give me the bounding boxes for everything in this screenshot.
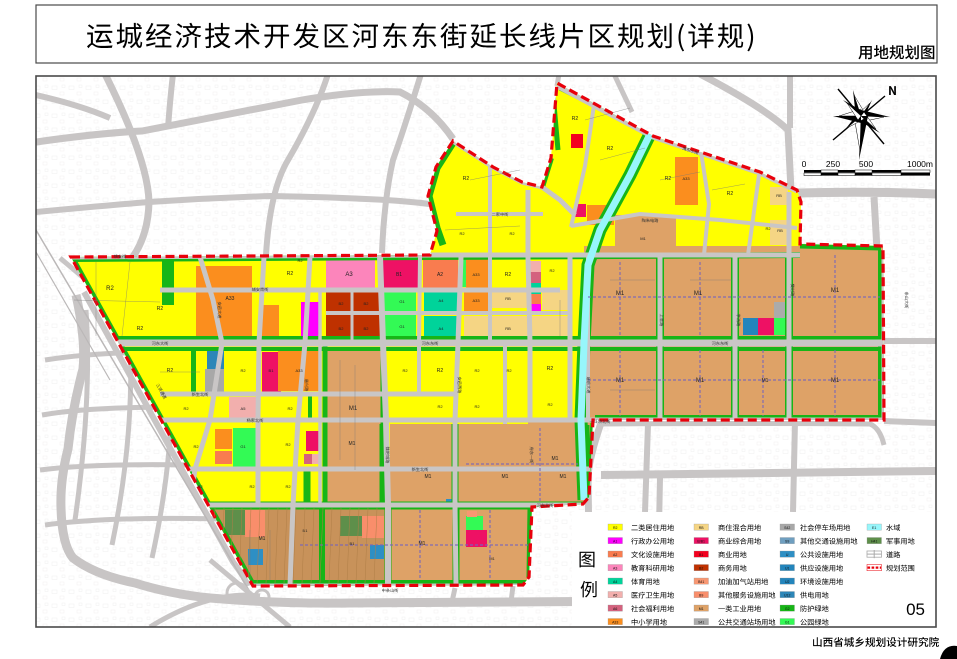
svg-text:M1: M1 (831, 378, 840, 384)
svg-text:R2: R2 (167, 368, 174, 374)
svg-text:R2: R2 (727, 191, 734, 197)
svg-text:M1: M1 (489, 556, 495, 561)
svg-text:R2: R2 (137, 326, 144, 332)
svg-text:A33: A33 (226, 296, 235, 302)
svg-text:R2: R2 (509, 231, 515, 236)
svg-text:R2: R2 (547, 366, 554, 372)
svg-text:R2: R2 (474, 404, 480, 409)
svg-text:R2: R2 (505, 272, 512, 278)
svg-text:R2: R2 (765, 226, 771, 231)
svg-text:B2: B2 (364, 301, 370, 306)
svg-text:R2: R2 (183, 406, 189, 411)
svg-text:R2: R2 (572, 116, 579, 122)
svg-text:G2: G2 (785, 607, 790, 611)
svg-text:A33: A33 (612, 620, 618, 624)
svg-text:A33: A33 (682, 176, 690, 181)
svg-text:R2: R2 (402, 368, 408, 373)
svg-text:A33: A33 (295, 368, 303, 373)
svg-text:B1: B1 (396, 272, 402, 278)
svg-text:250: 250 (826, 159, 840, 169)
svg-text:A1: A1 (613, 539, 617, 543)
svg-text:R2: R2 (506, 368, 512, 373)
svg-text:RB: RB (699, 526, 705, 530)
svg-text:RB: RB (777, 228, 783, 233)
svg-text:M1: M1 (616, 291, 625, 297)
svg-text:R2: R2 (240, 368, 246, 373)
svg-text:M1: M1 (831, 288, 840, 294)
svg-text:B1: B1 (699, 553, 703, 557)
svg-text:R2: R2 (549, 268, 555, 273)
svg-text:U2: U2 (785, 580, 790, 584)
svg-text:A2: A2 (613, 553, 617, 557)
svg-text:S41: S41 (698, 620, 704, 624)
svg-text:S9: S9 (785, 539, 789, 543)
svg-text:0: 0 (802, 159, 807, 169)
svg-text:M1: M1 (762, 378, 769, 384)
svg-text:S42: S42 (784, 526, 790, 530)
svg-text:B9: B9 (699, 593, 703, 597)
svg-text:B2: B2 (364, 326, 370, 331)
svg-text:B1: B1 (269, 368, 275, 373)
svg-text:R2: R2 (437, 404, 443, 409)
svg-text:R2: R2 (249, 484, 255, 489)
svg-text:R2: R2 (285, 484, 291, 489)
svg-text:G1: G1 (399, 324, 405, 329)
svg-text:M1: M1 (419, 541, 426, 547)
svg-text:R2: R2 (547, 402, 553, 407)
svg-text:M1: M1 (694, 291, 703, 297)
svg-text:R2: R2 (437, 368, 444, 374)
svg-text:A4: A4 (439, 298, 445, 303)
svg-text:M1: M1 (699, 607, 704, 611)
svg-text:M1: M1 (425, 474, 432, 480)
svg-text:R2: R2 (106, 286, 114, 292)
svg-text:R2: R2 (285, 442, 291, 447)
svg-text:E1: E1 (872, 526, 876, 530)
svg-text:A5: A5 (241, 406, 247, 411)
svg-text:R2: R2 (157, 306, 164, 312)
svg-text:A33: A33 (472, 272, 480, 277)
svg-text:R2: R2 (463, 176, 470, 182)
svg-text:B1: B1 (350, 541, 356, 546)
svg-text:A33: A33 (472, 298, 480, 303)
svg-text:RB: RB (776, 193, 782, 198)
svg-text:RB: RB (505, 326, 511, 331)
svg-text:U12: U12 (784, 593, 790, 597)
svg-text:M1: M1 (616, 378, 625, 384)
svg-text:B2: B2 (699, 566, 703, 570)
svg-text:M1: M1 (696, 378, 705, 384)
svg-text:1000m: 1000m (907, 159, 933, 169)
svg-text:R2: R2 (459, 231, 465, 236)
svg-text:M1: M1 (349, 406, 358, 412)
svg-text:RB: RB (505, 296, 511, 301)
svg-text:B1: B1 (303, 528, 309, 533)
svg-text:M1: M1 (349, 441, 356, 447)
svg-text:05: 05 (906, 600, 925, 619)
svg-text:R2: R2 (197, 484, 203, 489)
svg-text:G1: G1 (240, 444, 246, 449)
svg-text:G1: G1 (785, 620, 790, 624)
svg-text:A3: A3 (613, 566, 617, 570)
svg-text:500: 500 (859, 159, 873, 169)
svg-text:A2: A2 (437, 272, 443, 278)
svg-text:R2: R2 (193, 444, 199, 449)
svg-text:B/B1: B/B1 (697, 539, 705, 543)
svg-text:R2: R2 (297, 258, 303, 263)
svg-text:M1: M1 (560, 474, 567, 480)
svg-text:R2: R2 (607, 146, 614, 152)
svg-text:B2: B2 (339, 301, 345, 306)
svg-text:A5: A5 (613, 593, 617, 597)
svg-text:R2: R2 (287, 271, 294, 277)
svg-text:A4: A4 (439, 326, 445, 331)
svg-text:H41: H41 (871, 539, 877, 543)
svg-text:A4: A4 (613, 580, 617, 584)
svg-text:R2: R2 (613, 526, 618, 530)
svg-text:G1: G1 (399, 299, 405, 304)
svg-text:A6: A6 (613, 607, 617, 611)
svg-text:U1: U1 (785, 566, 790, 570)
svg-text:B41: B41 (698, 580, 704, 584)
svg-text:M1: M1 (502, 474, 509, 480)
svg-text:M1: M1 (552, 456, 559, 462)
svg-text:M1: M1 (640, 236, 646, 241)
svg-text:R2: R2 (474, 368, 480, 373)
svg-text:B2: B2 (339, 326, 345, 331)
svg-text:A3: A3 (345, 272, 353, 278)
svg-text:R2: R2 (287, 406, 293, 411)
svg-text:M1: M1 (259, 536, 266, 542)
